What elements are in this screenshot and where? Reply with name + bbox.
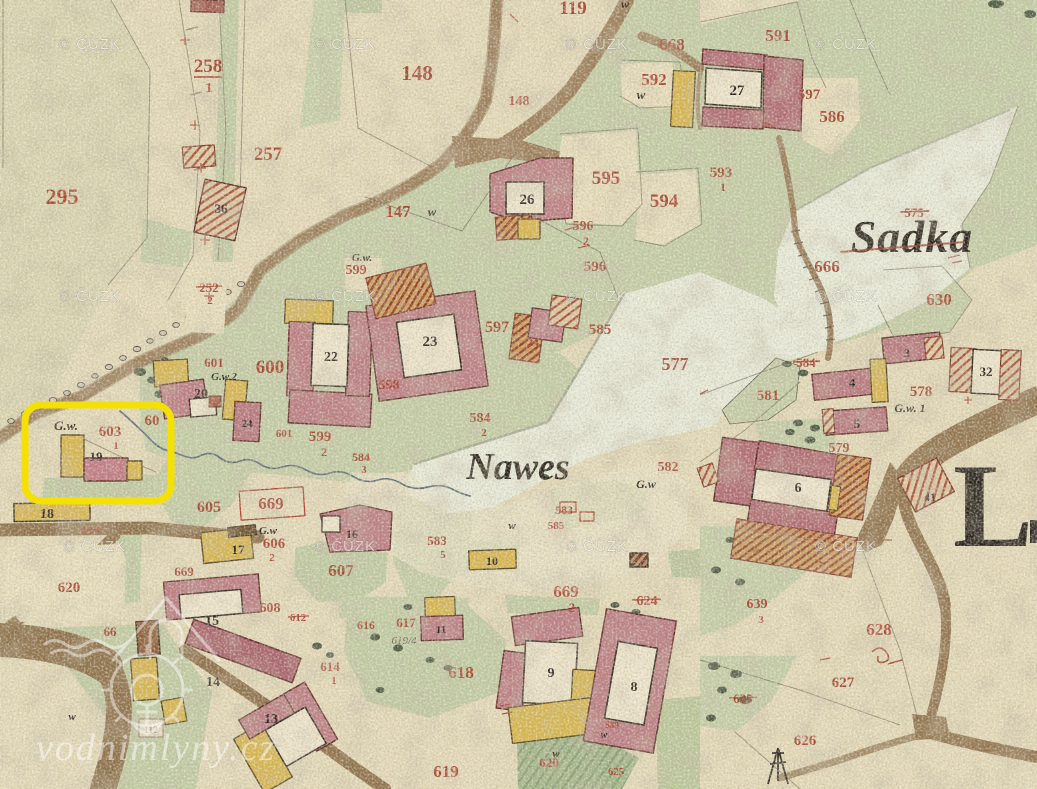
svg-text:© ČÚZK: © ČÚZK [815, 538, 877, 555]
svg-text:© ČÚZK: © ČÚZK [314, 36, 376, 53]
svg-text:© ČÚZK: © ČÚZK [314, 288, 376, 305]
svg-text:© ČÚZK: © ČÚZK [59, 288, 121, 305]
svg-text:© ČÚZK: © ČÚZK [64, 538, 126, 555]
svg-text:vodnimlyny.cz: vodnimlyny.cz [36, 727, 276, 769]
svg-text:© ČÚZK: © ČÚZK [314, 538, 376, 555]
svg-text:© ČÚZK: © ČÚZK [815, 36, 877, 53]
svg-text:© ČÚZK: © ČÚZK [566, 538, 628, 555]
svg-text:© ČÚZK: © ČÚZK [815, 288, 877, 305]
svg-text:© ČÚZK: © ČÚZK [566, 288, 628, 305]
svg-text:© ČÚZK: © ČÚZK [59, 36, 121, 53]
svg-text:© ČÚZK: © ČÚZK [566, 36, 628, 53]
